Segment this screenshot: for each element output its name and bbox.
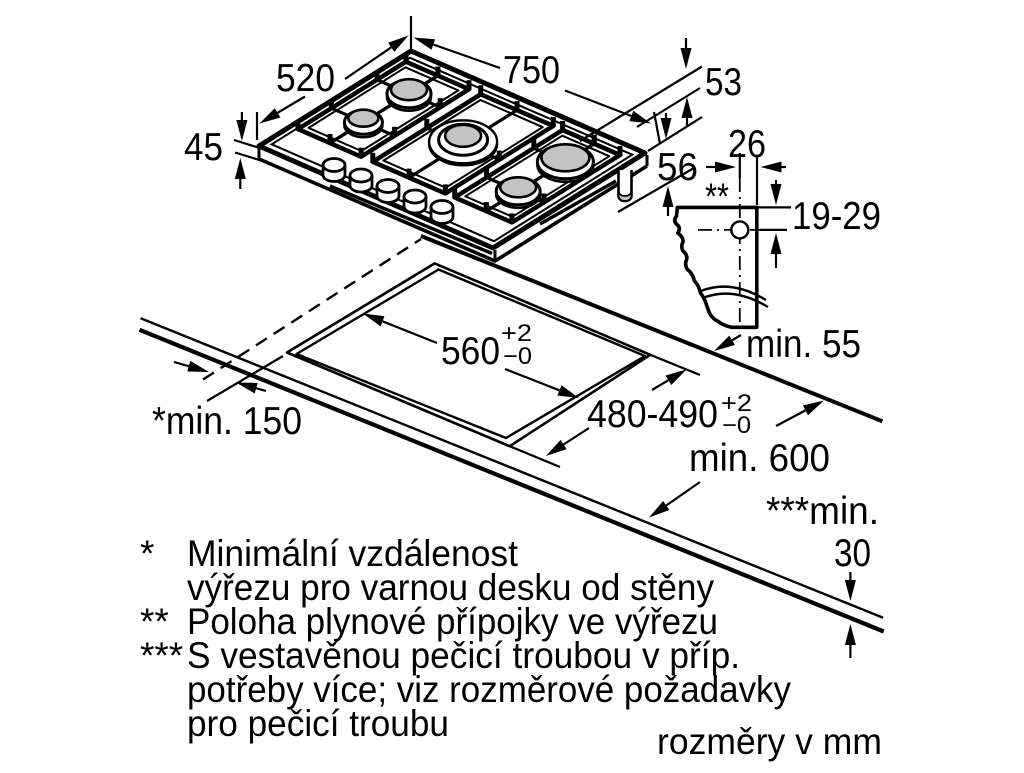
svg-text:560: 560 bbox=[441, 330, 500, 373]
svg-text:***: *** bbox=[140, 635, 183, 676]
svg-text:750: 750 bbox=[503, 49, 560, 92]
svg-text:***min.: ***min. bbox=[766, 490, 879, 533]
svg-text:**: ** bbox=[705, 176, 729, 217]
svg-text:45: 45 bbox=[184, 126, 223, 169]
svg-text:53: 53 bbox=[705, 61, 742, 104]
svg-text:19-29: 19-29 bbox=[792, 195, 881, 238]
svg-text:−0: −0 bbox=[503, 343, 532, 370]
svg-text:−0: −0 bbox=[722, 412, 751, 439]
svg-text:pro pečicí troubu: pro pečicí troubu bbox=[187, 703, 449, 744]
svg-text:30: 30 bbox=[834, 532, 871, 575]
svg-text:480-490: 480-490 bbox=[587, 393, 718, 436]
svg-text:56: 56 bbox=[657, 146, 698, 189]
svg-text:rozměry v mm: rozměry v mm bbox=[657, 721, 882, 762]
svg-text:520: 520 bbox=[276, 57, 335, 100]
svg-text:*: * bbox=[140, 533, 154, 574]
svg-text:min. 600: min. 600 bbox=[689, 437, 830, 480]
svg-text:26: 26 bbox=[728, 123, 766, 166]
svg-text:*min. 150: *min. 150 bbox=[152, 400, 302, 443]
svg-text:min. 55: min. 55 bbox=[746, 323, 861, 366]
